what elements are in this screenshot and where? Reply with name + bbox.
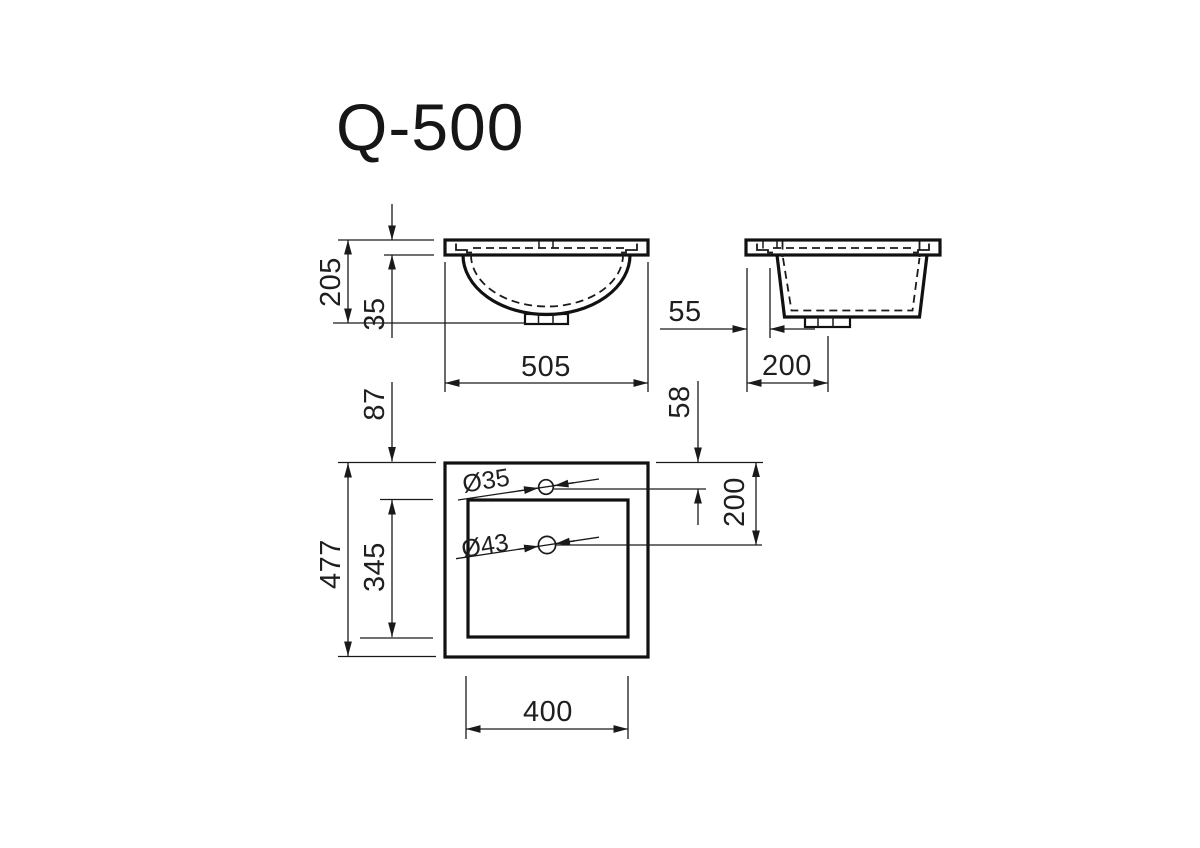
- front-overall-width-dim: 505: [521, 351, 571, 383]
- front-view: [445, 240, 648, 324]
- front-rim-left-notch: [456, 244, 472, 253]
- sink-dimension-drawing: Q-500 205 35 505: [0, 0, 1200, 848]
- plan-overall-depth-dim: 477: [315, 539, 347, 589]
- leader-arrow: [554, 483, 574, 486]
- leader-arrow: [555, 541, 575, 544]
- side-back-edge-to-drain-dim: 200: [762, 350, 812, 382]
- technical-drawing-canvas: Q-500 205 35 505: [0, 0, 1200, 848]
- plan-cutout-depth-dim: 345: [359, 542, 391, 592]
- drain-hole-diameter-label: Ø43: [459, 528, 510, 563]
- plan-back-edge-to-cutout-dim: 87: [359, 387, 391, 420]
- drawing-title: Q-500: [336, 90, 524, 164]
- front-view-dimensions: 205 35 505: [315, 204, 648, 392]
- leader-arrow: [518, 488, 539, 491]
- front-rim-height-dim: 35: [359, 297, 391, 330]
- plan-cutout-width-dim: 400: [523, 696, 573, 728]
- front-overall-height-dim: 205: [315, 257, 347, 307]
- side-bowl-outline: [777, 255, 927, 317]
- plan-view: Ø35 Ø43: [445, 463, 762, 657]
- front-bowl-outer-arc: [463, 255, 630, 315]
- side-flange-left-notch: [757, 244, 773, 253]
- side-view: [746, 240, 940, 327]
- plan-basin-cutout-outline: [468, 500, 628, 637]
- plan-drain-hole-offset-dim: 200: [719, 477, 751, 527]
- side-view-dimensions: 55 200: [660, 268, 828, 392]
- side-bowl-inner-hidden: [783, 258, 920, 311]
- plan-view-dimensions: 87 477 345 400 58 200: [315, 381, 763, 739]
- plan-faucet-hole-offset-dim: 58: [664, 385, 696, 418]
- side-flange-right-notch: [913, 244, 929, 253]
- side-back-edge-to-basin-dim: 55: [668, 296, 701, 328]
- leader-arrow: [518, 546, 539, 549]
